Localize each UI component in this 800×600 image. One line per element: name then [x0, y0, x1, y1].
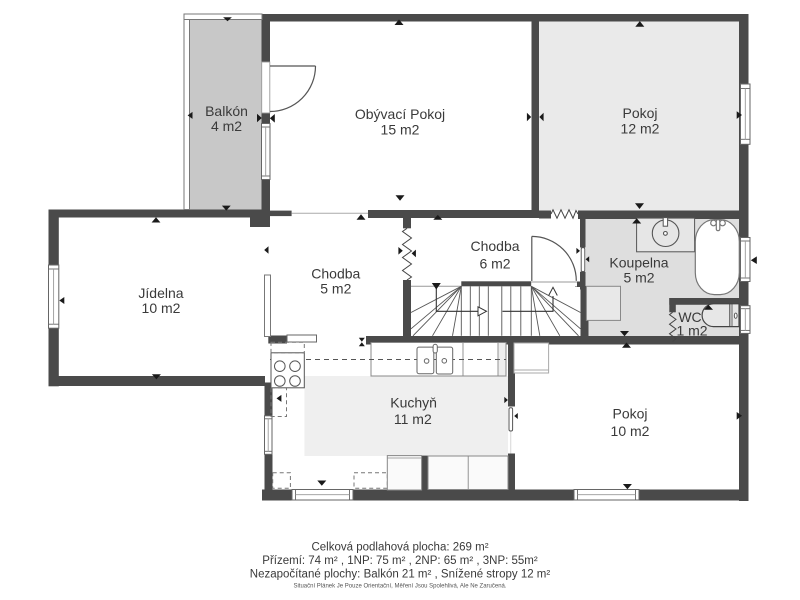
- svg-text:10 m2: 10 m2: [142, 300, 181, 316]
- svg-text:Kuchyň: Kuchyň: [390, 395, 437, 411]
- svg-text:6 m2: 6 m2: [479, 256, 510, 272]
- svg-text:Koupelna: Koupelna: [609, 255, 668, 271]
- svg-text:Balkón: Balkón: [205, 103, 248, 119]
- svg-text:4 m2: 4 m2: [211, 118, 242, 134]
- svg-text:Celková podlahová plocha: 269: Celková podlahová plocha: 269 m²: [311, 542, 488, 554]
- svg-text:Chodba: Chodba: [470, 238, 519, 254]
- svg-text:15 m2: 15 m2: [381, 122, 420, 138]
- svg-text:Přízemí: 74 m² , 1NP: 75 m² ,: Přízemí: 74 m² , 1NP: 75 m² , 2NP: 65 m²…: [262, 555, 538, 567]
- svg-text:Obývací Pokoj: Obývací Pokoj: [355, 106, 445, 122]
- svg-text:Pokoj: Pokoj: [622, 105, 657, 121]
- svg-text:11 m2: 11 m2: [394, 411, 432, 427]
- svg-text:Chodba: Chodba: [311, 265, 360, 281]
- svg-text:Situační Plánek Je Pouze Orien: Situační Plánek Je Pouze Orientační, Měř…: [293, 583, 506, 589]
- svg-text:1 m2: 1 m2: [676, 323, 707, 339]
- svg-text:5 m2: 5 m2: [320, 280, 351, 296]
- svg-text:Pokoj: Pokoj: [612, 406, 647, 422]
- svg-text:Jídelna: Jídelna: [138, 285, 183, 301]
- svg-text:5 m2: 5 m2: [623, 269, 654, 285]
- svg-text:Nezapočítané plochy: Balkón 21: Nezapočítané plochy: Balkón 21 m² , Sníž…: [250, 568, 551, 580]
- svg-text:12 m2: 12 m2: [621, 121, 660, 137]
- svg-text:10 m2: 10 m2: [611, 423, 650, 439]
